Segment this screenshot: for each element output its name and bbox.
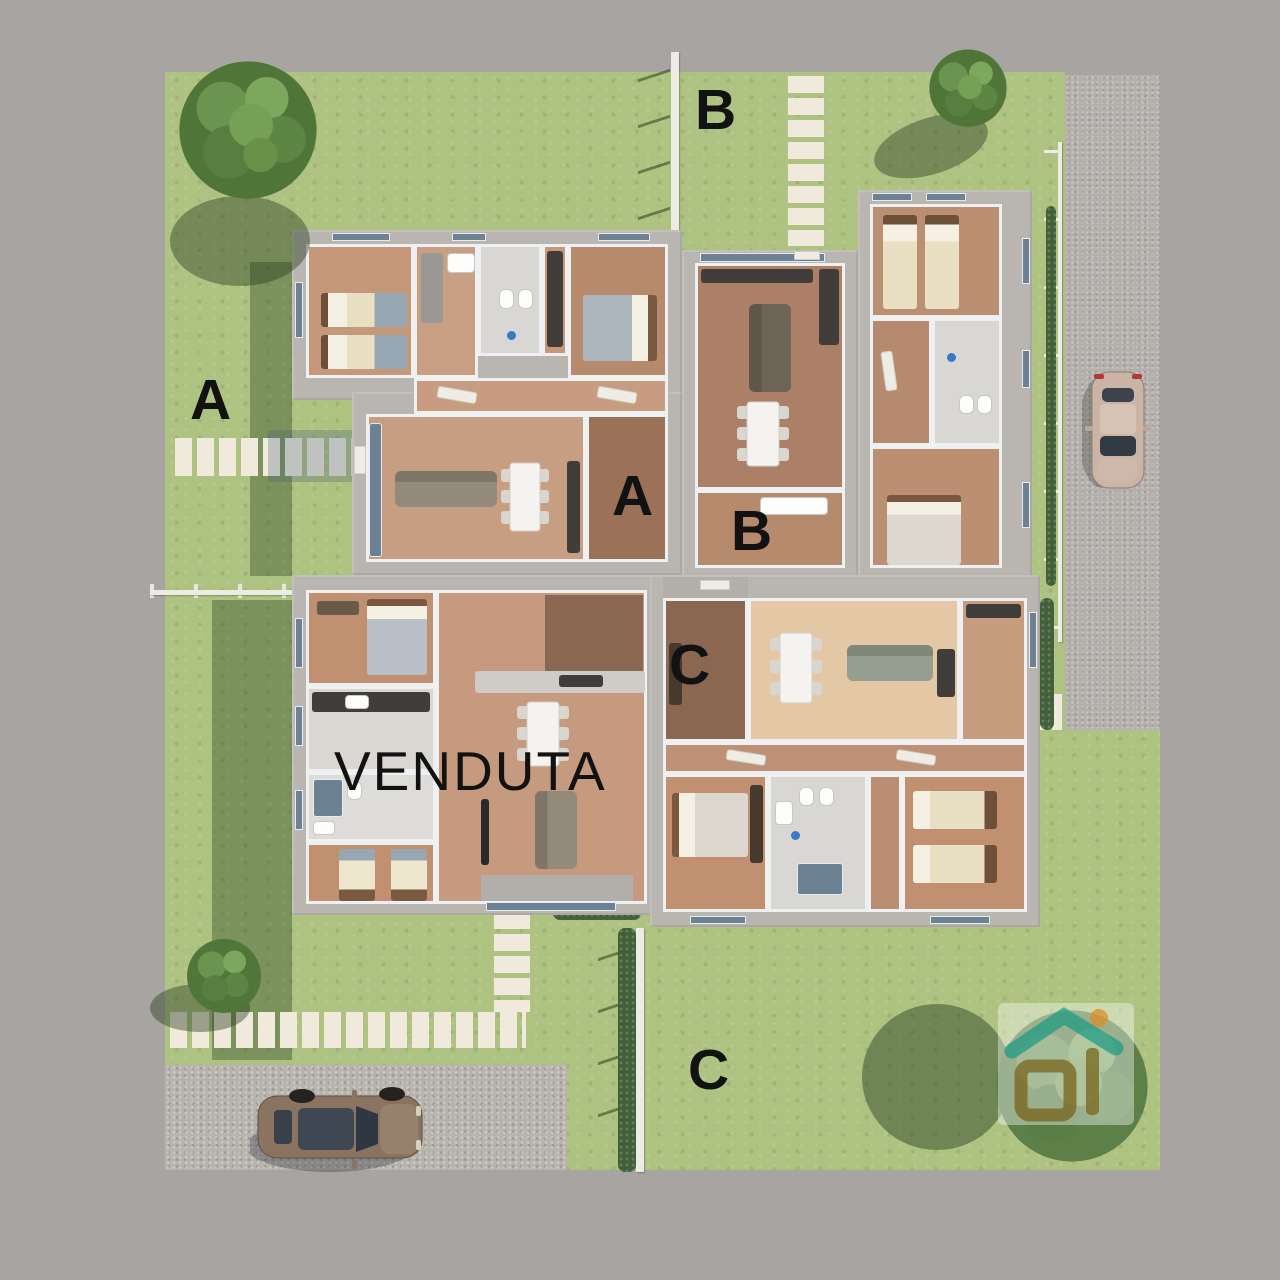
toilet: [499, 289, 514, 309]
dining-set: [497, 457, 553, 539]
unit-sold-bedroom-double: [306, 590, 436, 686]
unit-c-living-dining: [748, 598, 960, 742]
window: [295, 790, 303, 830]
fence-east: [1058, 142, 1062, 642]
entry-door-b: [794, 251, 820, 260]
bed-double: [583, 295, 657, 361]
hedge-building-east: [1040, 598, 1054, 730]
open-door: [436, 386, 477, 405]
bidet: [977, 395, 992, 414]
unit-label-b: B: [731, 503, 772, 560]
fence-north: [671, 52, 679, 234]
sink: [947, 353, 956, 362]
unit-a-bedroom-double: [568, 244, 668, 378]
unit-b-hall: [870, 318, 932, 446]
sink: [313, 821, 335, 835]
fence-west: [150, 590, 292, 595]
sink: [345, 695, 369, 709]
window-wall: [369, 423, 382, 557]
bed-double: [672, 793, 748, 857]
entry-door-c: [700, 580, 730, 590]
site-plan-render: A B A B C C VENDUTA: [0, 0, 1280, 1280]
unit-b-bedroom-double: [870, 446, 1002, 568]
window: [295, 282, 303, 338]
open-door: [880, 350, 897, 391]
garden-label-a: A: [190, 372, 231, 429]
unit-b-bedroom-twin: [870, 204, 1002, 318]
toilet: [959, 395, 974, 414]
dining-set: [731, 398, 795, 470]
bed-single: [391, 849, 427, 901]
unit-c-bathroom: [768, 774, 868, 912]
window: [1022, 482, 1030, 528]
garden-path-south-vertical: [494, 912, 530, 1012]
window: [1029, 612, 1037, 668]
kitchen-counter: [966, 604, 1021, 618]
bed-single: [913, 845, 997, 883]
fence-top-rails-shadow: [638, 69, 670, 229]
unit-a-bedroom-twin: [306, 244, 414, 378]
sofa: [749, 304, 791, 392]
letter-i-icon: [1086, 1048, 1099, 1115]
unit-a-hallway: [414, 378, 668, 414]
unit-c-kitchen: [960, 598, 1027, 742]
window: [872, 193, 912, 201]
unit-a-kitchen-niche: [542, 244, 568, 356]
wardrobe: [750, 785, 763, 863]
bed-single: [339, 849, 375, 901]
faucet: [791, 831, 800, 840]
terrace: [481, 875, 633, 901]
open-door: [725, 749, 766, 766]
toilet: [799, 787, 814, 806]
open-door: [895, 749, 936, 766]
bidet: [819, 787, 834, 806]
unit-sold-bedroom-twin: [306, 842, 436, 904]
window: [1022, 350, 1030, 388]
car-street: [1082, 366, 1154, 494]
window: [1022, 238, 1030, 284]
window: [690, 916, 746, 924]
hedge-east: [1046, 206, 1056, 586]
unit-c-closet: [868, 774, 902, 912]
bed-double: [367, 599, 427, 675]
sink: [775, 801, 793, 825]
window: [930, 916, 990, 924]
bed-double: [887, 495, 961, 565]
sofa: [395, 471, 497, 507]
tree-northwest: [170, 50, 326, 210]
kitchen-counter: [547, 251, 563, 347]
dresser: [317, 601, 359, 615]
sink: [507, 331, 516, 340]
window: [295, 706, 303, 746]
car-driveway: [250, 1084, 432, 1176]
building-shadow-north: [250, 262, 292, 576]
agency-watermark-logo: [998, 1003, 1134, 1129]
window: [598, 233, 650, 241]
path-a-shadow: [268, 430, 356, 482]
open-door: [596, 386, 637, 405]
dining-set: [765, 627, 827, 709]
sold-label: VENDUTA: [334, 744, 607, 799]
sofa: [535, 791, 577, 869]
shelf: [447, 253, 475, 273]
garden-path-b: [788, 76, 824, 246]
unit-a-closet-hall: [414, 244, 478, 378]
window: [295, 618, 303, 668]
unit-c-bedroom-twin: [902, 774, 1027, 912]
fence-south: [636, 928, 644, 1172]
kitchen-counter: [567, 461, 580, 553]
entry-door-a: [354, 446, 366, 474]
bed-single: [321, 335, 407, 369]
unit-a-bathroom: [478, 244, 542, 356]
bidet: [518, 289, 533, 309]
bed-single: [925, 215, 959, 309]
unit-b-bathroom: [932, 318, 1002, 446]
bed-single: [913, 791, 997, 829]
kitchen-counter: [312, 692, 430, 712]
garden-label-b: B: [695, 82, 736, 139]
bed-single: [883, 215, 917, 309]
wardrobe: [421, 253, 443, 323]
bed-single: [321, 293, 407, 327]
unit-b-living-dining: [695, 263, 845, 490]
cooktop: [559, 675, 603, 687]
window: [332, 233, 390, 241]
sofa: [847, 645, 933, 681]
fridge: [937, 649, 955, 697]
unit-label-c: C: [669, 637, 710, 694]
unit-a-living-dining: [366, 414, 586, 562]
window: [452, 233, 486, 241]
shower: [797, 863, 843, 895]
patio-door-sold: [486, 902, 616, 911]
unit-c-bedroom-double: [663, 774, 768, 912]
hedge-south: [618, 928, 636, 1172]
unit-label-a: A: [612, 468, 653, 525]
unit-c-hallway: [663, 742, 1027, 774]
sun-icon: [1090, 1009, 1108, 1027]
tv-unit: [481, 799, 489, 865]
kitchen-counter: [819, 269, 839, 345]
bush-southwest: [180, 924, 268, 1028]
window: [926, 193, 966, 201]
garden-label-c: C: [688, 1042, 729, 1099]
kitchen-counter: [701, 269, 813, 283]
tree-northeast: [922, 38, 1014, 142]
